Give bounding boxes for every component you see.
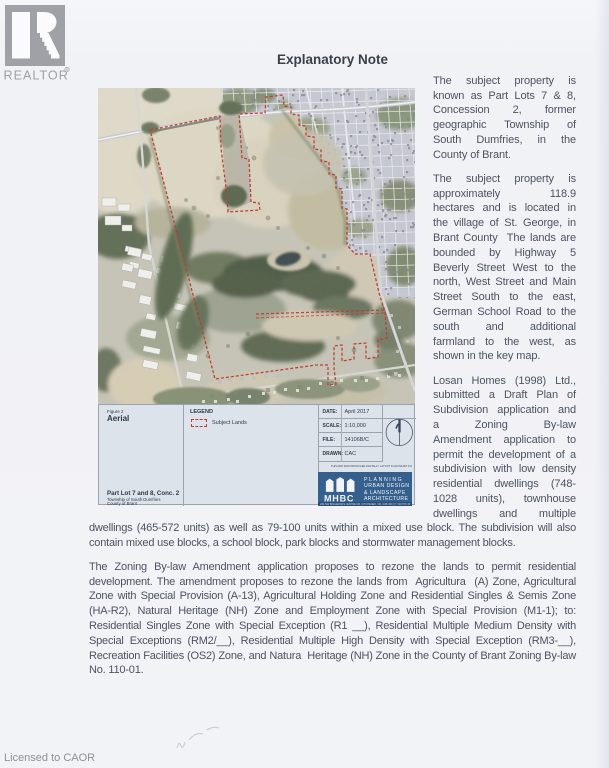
svg-text:REALTOR: REALTOR: [4, 69, 69, 83]
